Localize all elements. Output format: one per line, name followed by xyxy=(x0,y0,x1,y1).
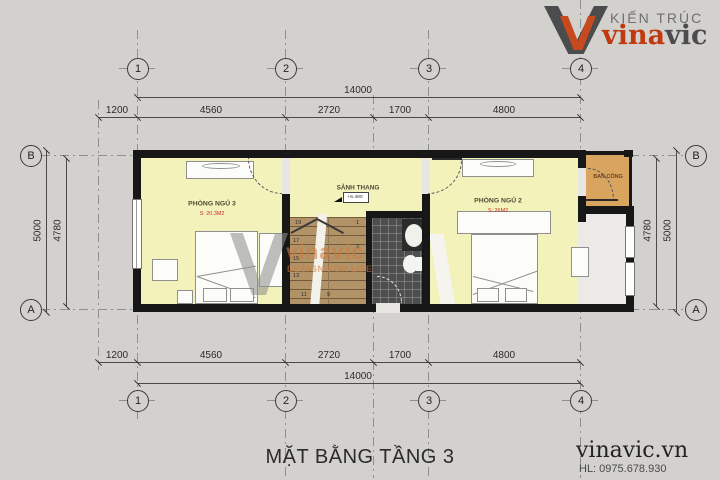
grid-bubble-4-top: 4 xyxy=(570,58,592,80)
grid-bubble-2-bottom: 2 xyxy=(275,390,297,412)
dim-line-right-inner xyxy=(656,158,657,306)
dim-top-4560: 4560 xyxy=(186,105,236,116)
bedroom3-window xyxy=(132,199,142,269)
grid-bubble-A-left: A xyxy=(20,299,42,321)
wall-balcony-stub-top xyxy=(578,150,586,168)
dim-right-5000: 5000 xyxy=(663,201,674,261)
dim-line-left-inner xyxy=(66,158,67,306)
bedroom2-area: S: 26M2 xyxy=(464,207,532,213)
wall-balcony-corner xyxy=(624,150,633,157)
bedroom3-wardrobe-handle xyxy=(202,163,240,169)
balcony-label: BAN CÔNG xyxy=(592,173,625,179)
bedroom2-pillow xyxy=(477,288,499,302)
grid-bubble-2-top: 2 xyxy=(275,58,297,80)
dim-line-right-outer xyxy=(676,150,677,312)
dim-left-5000: 5000 xyxy=(33,201,44,261)
logo-text-brand: vinavic xyxy=(602,20,707,51)
bedroom2-pillow xyxy=(505,288,527,302)
dim-right-4780: 4780 xyxy=(643,201,654,261)
grid-bubble-1-top: 1 xyxy=(127,58,149,80)
watermark-brand: vinavic xyxy=(286,241,364,265)
plan-title: MẶT BẰNG TẦNG 3 xyxy=(250,446,470,469)
dim-line-left-outer xyxy=(46,150,47,312)
bedroom2-label: PHÒNG NGỦ 2 xyxy=(456,197,541,205)
wall-balcony-bottom xyxy=(578,206,634,214)
dim-bot-1700: 1700 xyxy=(375,350,425,361)
dim-line-top-seg xyxy=(98,117,580,118)
balcony-door-gap xyxy=(578,168,586,196)
bedroom3-table xyxy=(152,259,178,281)
dim-bot-2720: 2720 xyxy=(304,350,354,361)
wall-top xyxy=(133,150,586,158)
bedroom2-headboard xyxy=(457,211,551,234)
bedroom3-side-table xyxy=(177,290,193,304)
stair-num: 1 xyxy=(356,219,359,225)
bedroom2-desk xyxy=(571,247,589,277)
grid-line-v0 xyxy=(98,100,99,370)
stair-hall-label: SẢNH THANG xyxy=(320,184,397,191)
stair-num: 19 xyxy=(295,219,301,225)
dim-top-total: 14000 xyxy=(318,85,398,96)
wall-bath-bedroom2 xyxy=(422,192,430,304)
floorplan-canvas: 14000 1200 4560 2720 1700 4800 1200 4560… xyxy=(0,0,720,480)
footer-website: vinavic.vn xyxy=(576,438,688,463)
footer-phone: HL: 0975.678.930 xyxy=(579,463,666,475)
watermark-tagline: DESIGN FOR LIFE xyxy=(287,264,373,274)
dim-bot-4800: 4800 xyxy=(479,350,529,361)
sink-basin xyxy=(405,224,423,247)
dim-line-bot-seg xyxy=(98,362,580,363)
grid-bubble-3-bottom: 3 xyxy=(418,390,440,412)
grid-bubble-4-bottom: 4 xyxy=(570,390,592,412)
stair-num: 9 xyxy=(327,291,330,297)
bedroom3-label: PHÒNG NGỦ 3 xyxy=(170,200,255,208)
wall-balcony-right xyxy=(629,151,632,213)
dim-bot-4560: 4560 xyxy=(186,350,236,361)
bedroom2-window-1 xyxy=(625,226,635,258)
bedroom2-wardrobe-handle xyxy=(480,161,516,167)
grid-bubble-A-right: A xyxy=(685,299,707,321)
grid-bubble-1-bottom: 1 xyxy=(127,390,149,412)
bedroom2-window-2 xyxy=(625,262,635,296)
dim-top-1700: 1700 xyxy=(375,105,425,116)
balcony-door-leaf xyxy=(586,199,618,201)
bedroom3-window-line xyxy=(136,200,137,268)
bedroom3-door-gap xyxy=(282,158,290,194)
dim-line-bot-total xyxy=(137,383,580,384)
wall-stair-bath xyxy=(366,217,372,304)
logo-text-vic: vic xyxy=(665,20,707,51)
grid-bubble-B-right: B xyxy=(685,145,707,167)
bedroom3-pillow xyxy=(203,288,227,302)
dim-top-4800: 4800 xyxy=(479,105,529,116)
grid-bubble-B-left: B xyxy=(20,145,42,167)
wall-bath-top xyxy=(366,211,430,218)
dim-top-2720: 2720 xyxy=(304,105,354,116)
logo-text-vina: vina xyxy=(602,20,665,51)
dim-line-top-total xyxy=(137,97,580,98)
dim-bot-total: 14000 xyxy=(318,371,398,382)
dim-left-4780: 4780 xyxy=(53,201,64,261)
level-marker-value: +6.480 xyxy=(340,194,370,200)
bedroom3-area: S: 20.3M2 xyxy=(178,210,246,216)
stair-num: 11 xyxy=(301,291,307,297)
bathroom-door-gap xyxy=(376,303,400,313)
grid-bubble-3-top: 3 xyxy=(418,58,440,80)
